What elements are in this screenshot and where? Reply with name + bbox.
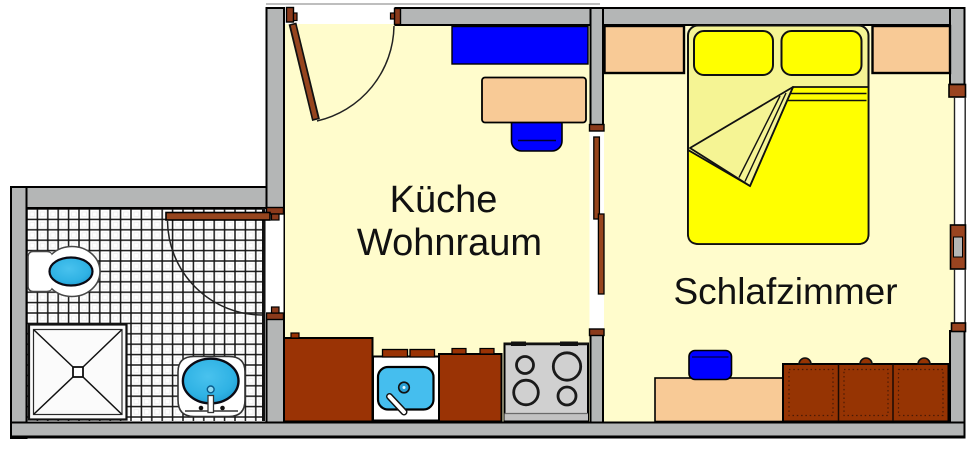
svg-text:Küche: Küche xyxy=(390,179,498,221)
svg-text:Wohnraum: Wohnraum xyxy=(357,222,542,264)
svg-text:Schlafzimmer: Schlafzimmer xyxy=(673,271,897,312)
